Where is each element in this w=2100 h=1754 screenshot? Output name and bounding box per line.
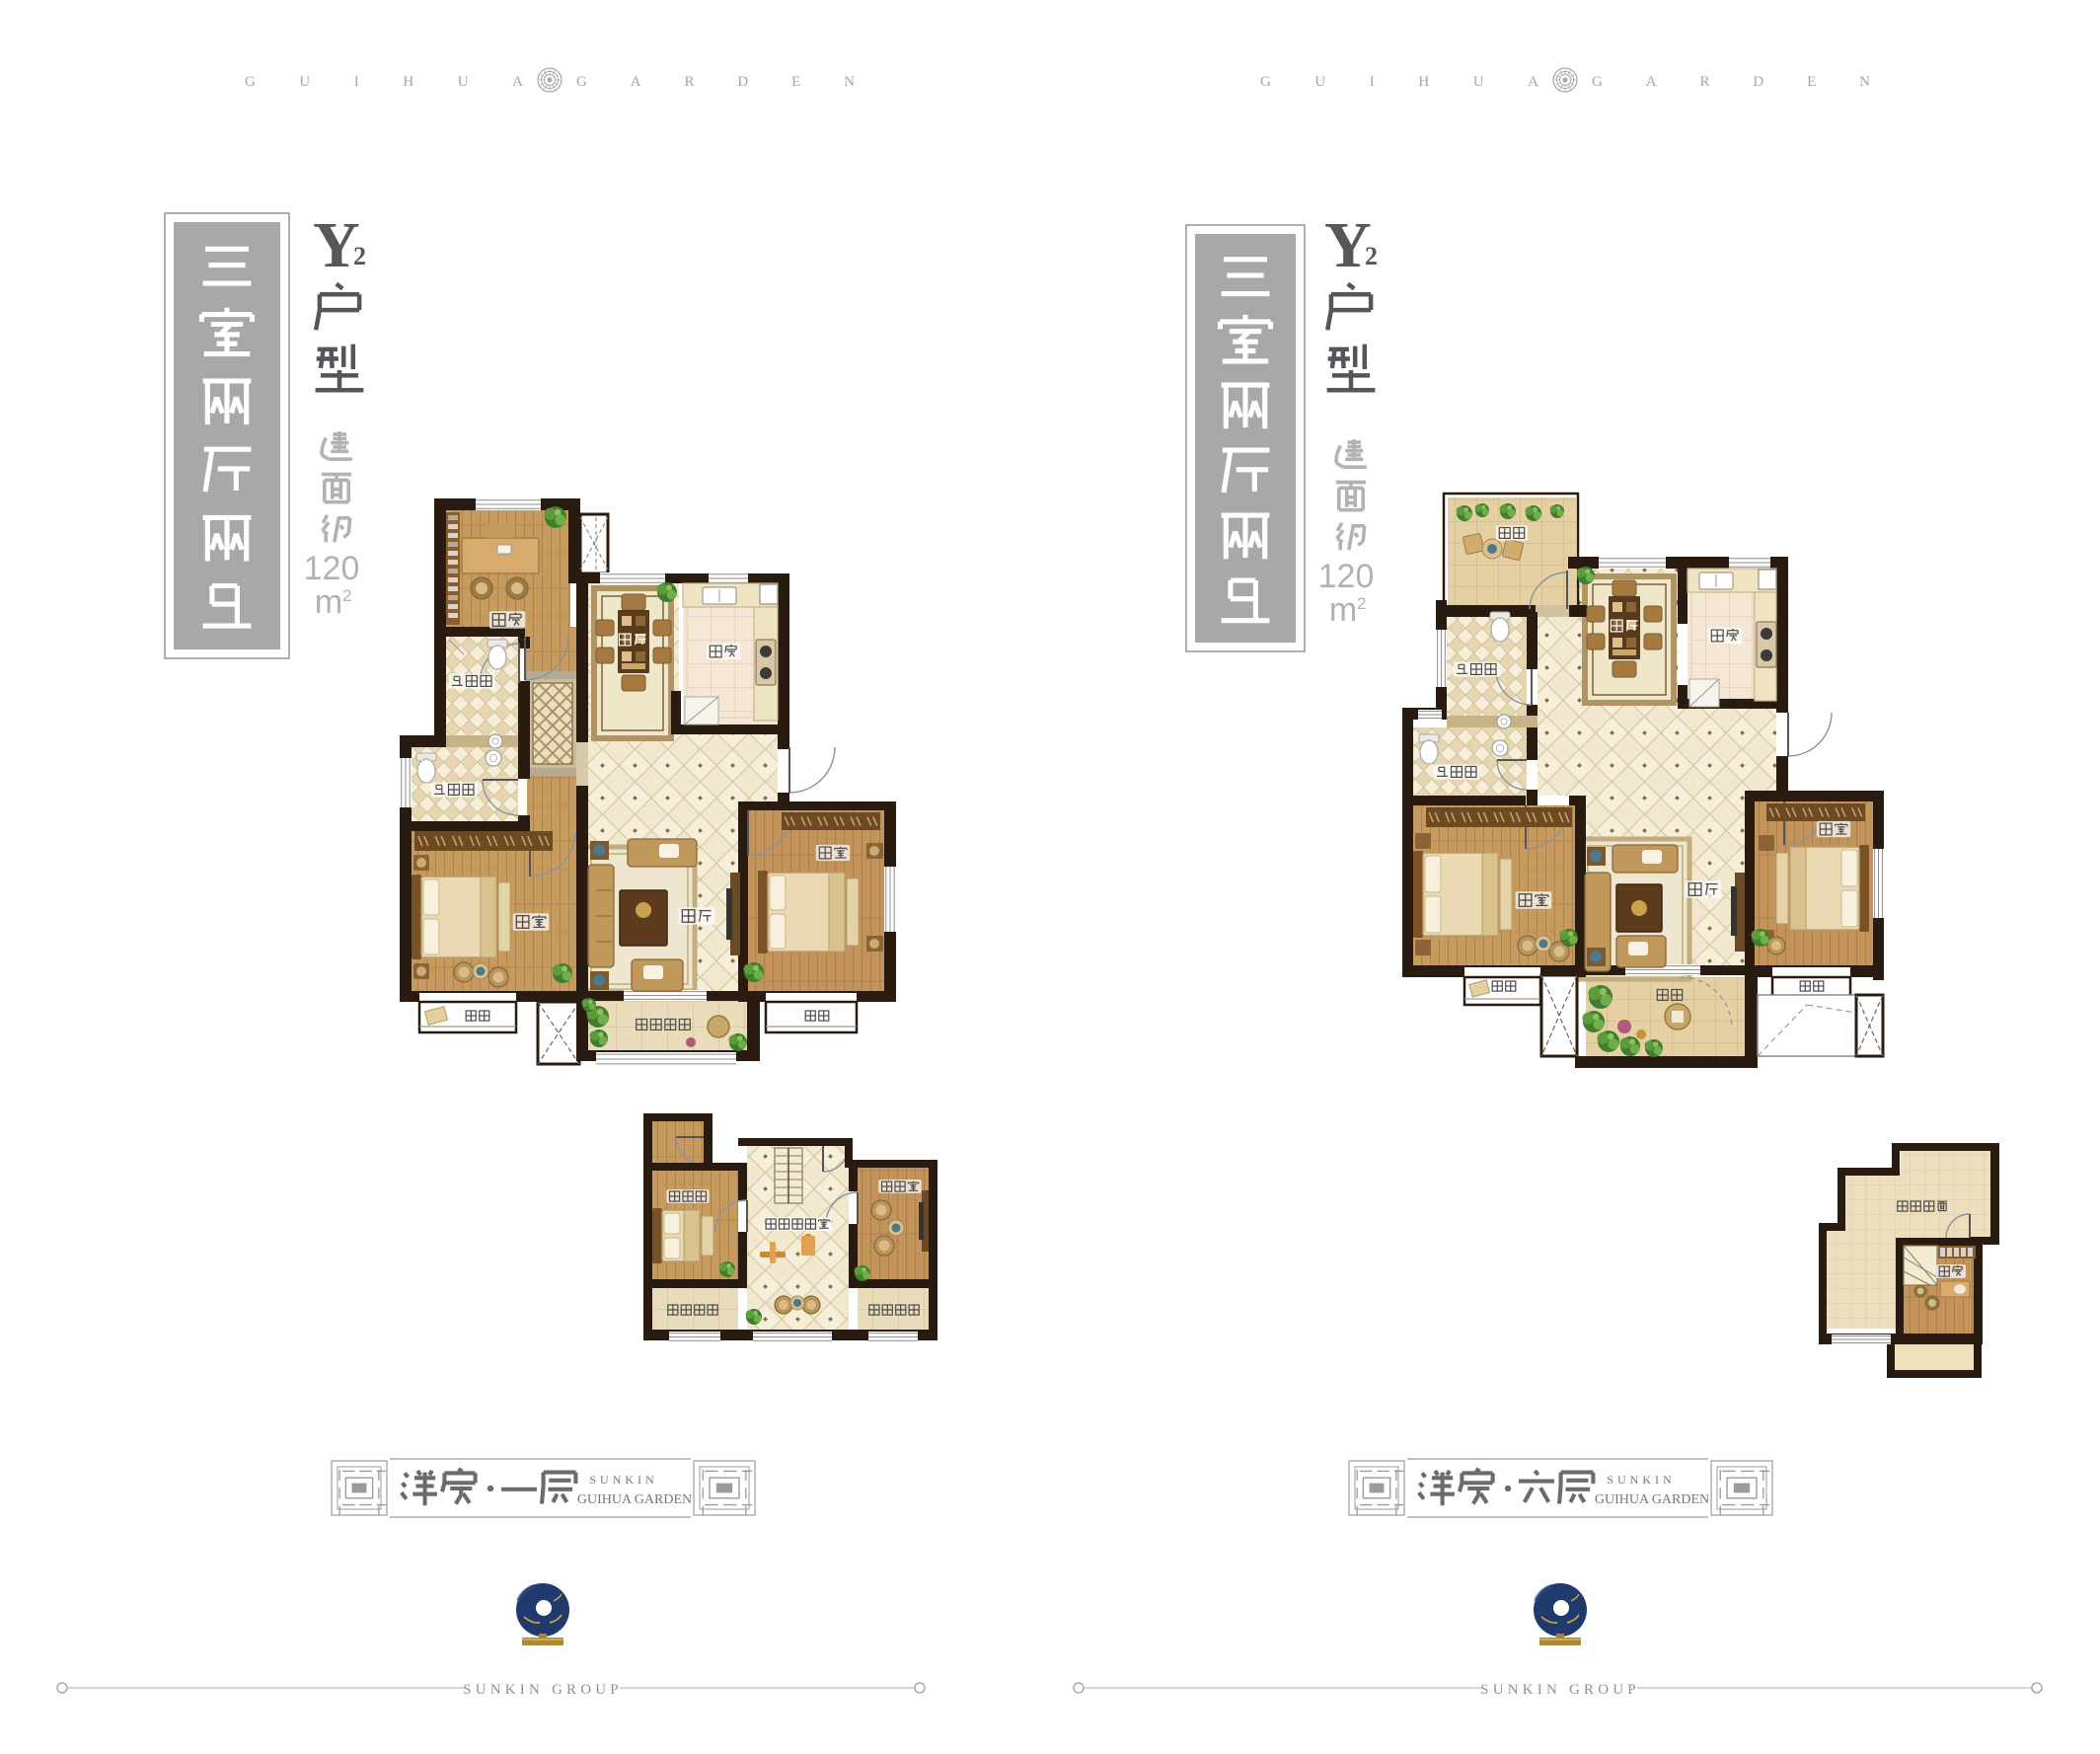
svg-text:m: m	[1329, 591, 1357, 629]
svg-text:2: 2	[1365, 242, 1378, 270]
svg-text:m: m	[315, 583, 342, 621]
svg-text:SUNKIN GROUP: SUNKIN GROUP	[1480, 1682, 1640, 1698]
svg-text:120: 120	[1318, 558, 1375, 595]
svg-text:GUIHUA GARDEN: GUIHUA GARDEN	[1595, 1492, 1709, 1507]
svg-text:GUIHUA GARDEN: GUIHUA GARDEN	[577, 1492, 692, 1507]
svg-text:2: 2	[353, 242, 366, 270]
svg-text:120: 120	[304, 550, 360, 587]
svg-text:2: 2	[1357, 594, 1366, 613]
svg-text:SUNKIN GROUP: SUNKIN GROUP	[463, 1682, 623, 1698]
svg-text:SUNKIN: SUNKIN	[1607, 1473, 1675, 1487]
svg-text:2: 2	[342, 586, 351, 605]
svg-text:SUNKIN: SUNKIN	[589, 1473, 657, 1487]
